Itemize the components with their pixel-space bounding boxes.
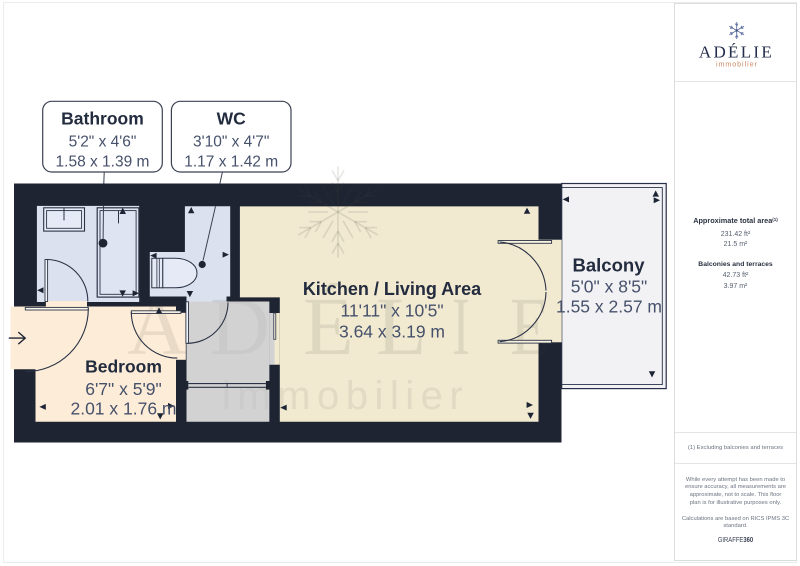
svg-text:WC: WC: [217, 109, 247, 129]
svg-text:Bathroom: Bathroom: [61, 109, 144, 129]
svg-text:11'11" x 10'5": 11'11" x 10'5": [340, 301, 443, 321]
svg-text:2.01 x 1.76 m: 2.01 x 1.76 m: [70, 399, 176, 419]
svg-text:Kitchen / Living Area: Kitchen / Living Area: [303, 279, 482, 299]
svg-text:1.55 x 2.57 m: 1.55 x 2.57 m: [556, 297, 662, 317]
svg-text:ADÉLIE: ADÉLIE: [699, 43, 774, 62]
svg-text:5'2" x 4'6": 5'2" x 4'6": [69, 134, 137, 151]
svg-text:E: E: [510, 282, 550, 373]
svg-text:1.17 x 1.42 m: 1.17 x 1.42 m: [184, 154, 278, 171]
svg-text:1.58 x 1.39 m: 1.58 x 1.39 m: [56, 154, 150, 171]
svg-text:3'10" x 4'7": 3'10" x 4'7": [193, 134, 269, 151]
svg-text:6'7" x 5'9": 6'7" x 5'9": [85, 379, 162, 399]
svg-text:immobilier: immobilier: [716, 61, 758, 68]
svg-text:5'0" x 8'5": 5'0" x 8'5": [571, 276, 648, 296]
svg-text:Bedroom: Bedroom: [85, 357, 162, 377]
svg-text:3.64 x 3.19 m: 3.64 x 3.19 m: [339, 321, 445, 341]
svg-text:Balcony: Balcony: [573, 254, 646, 275]
